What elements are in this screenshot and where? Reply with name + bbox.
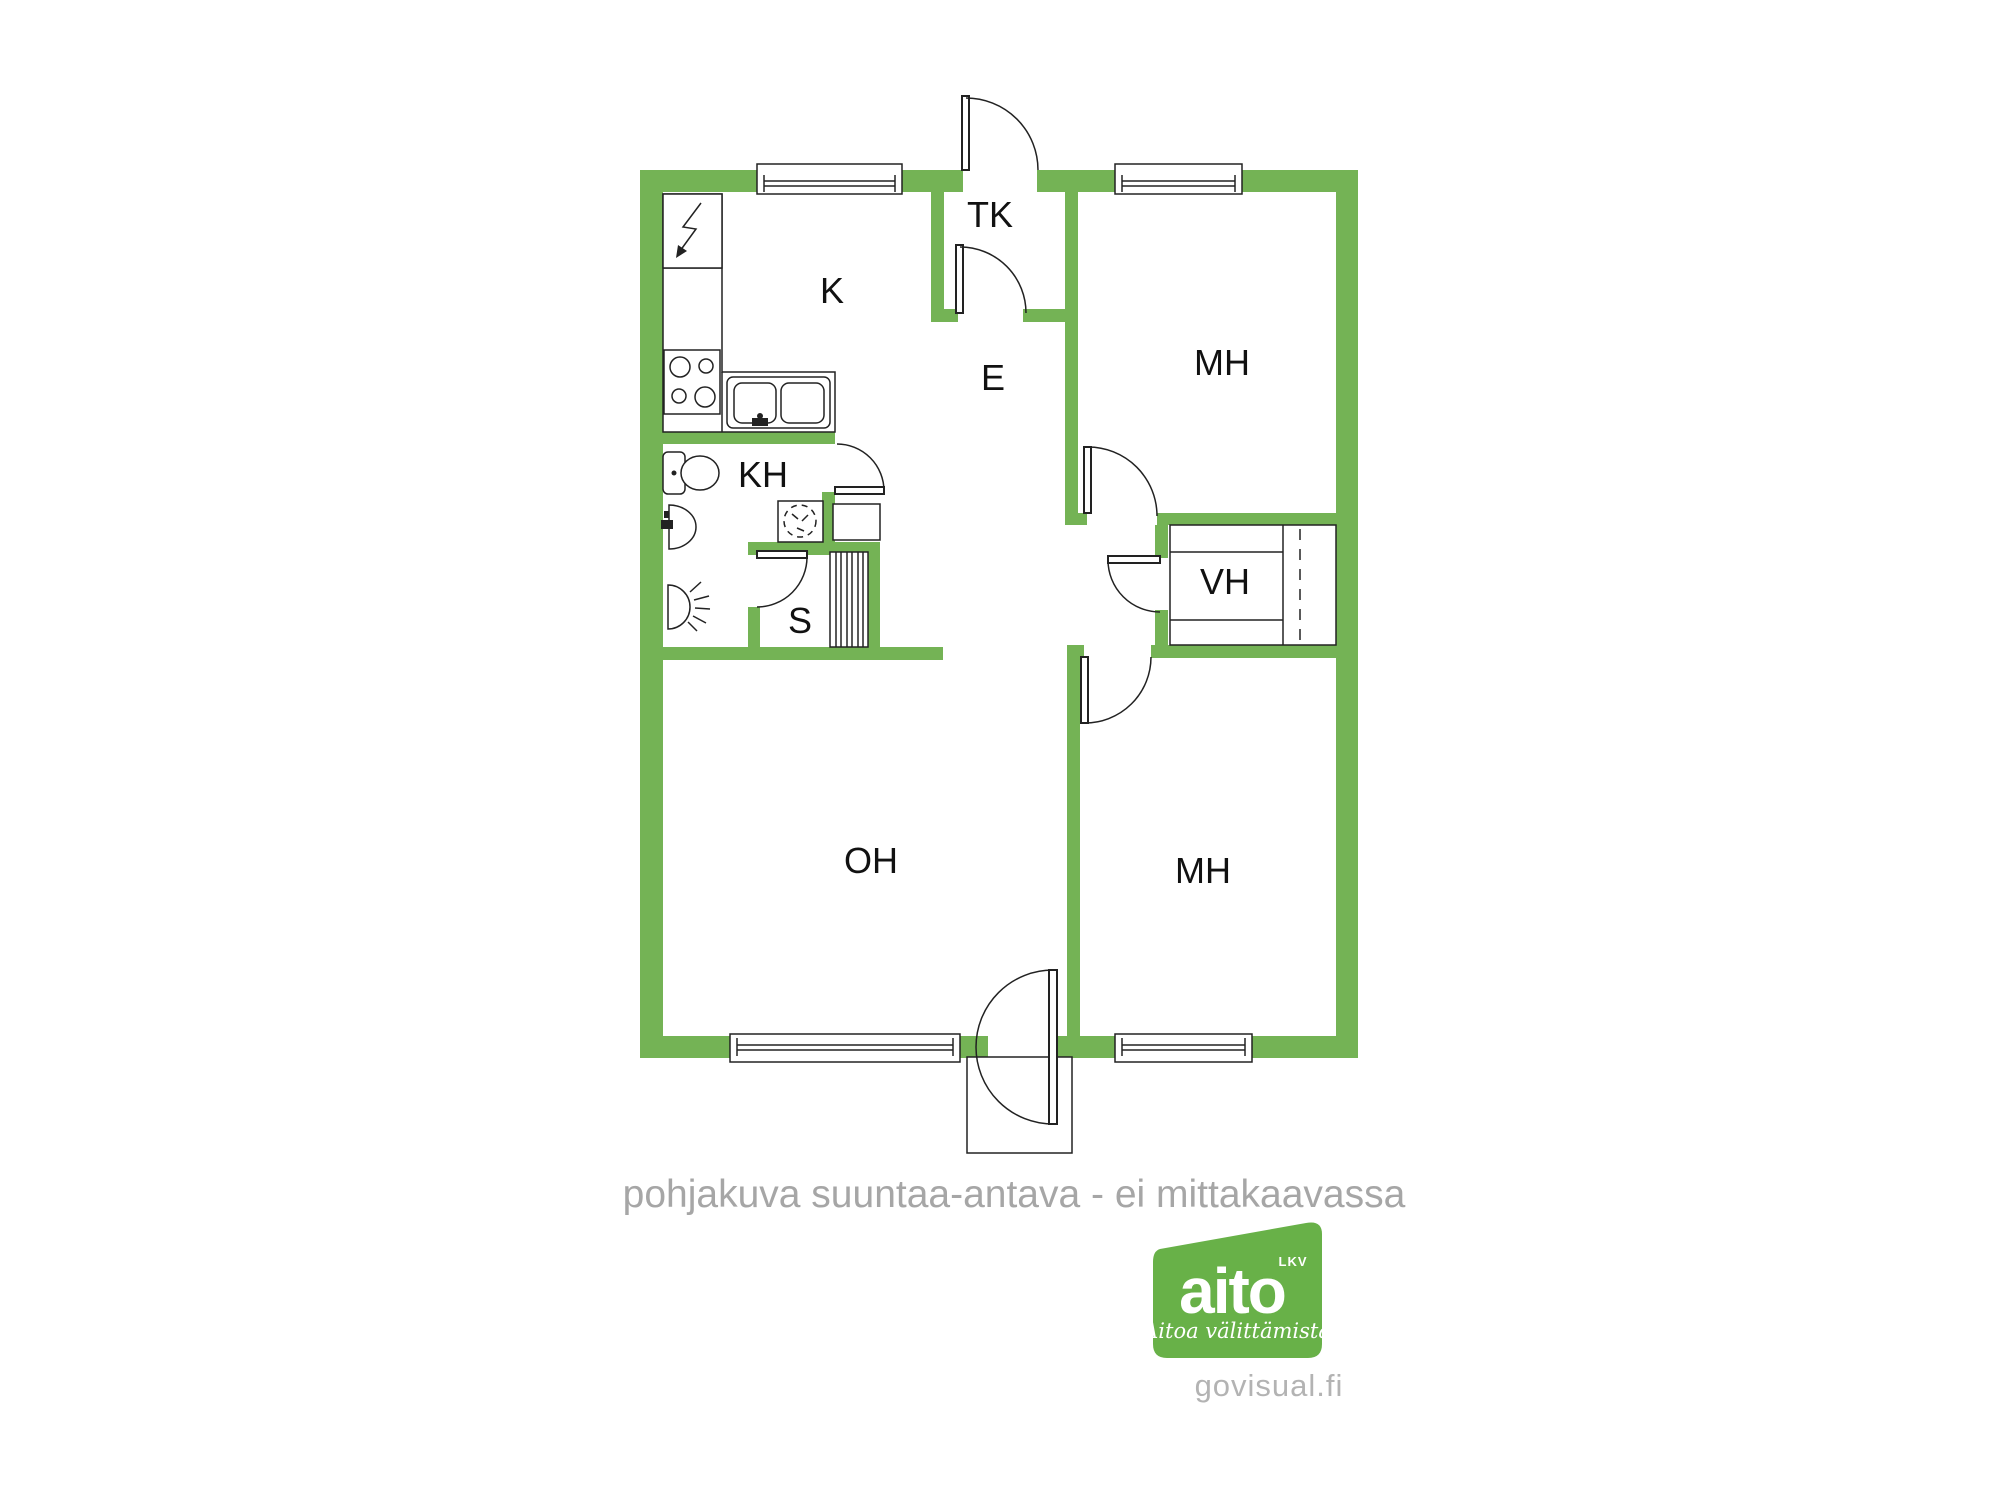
sauna-benches-icon: [830, 552, 868, 647]
footer-website: govisual.fi: [1195, 1368, 1344, 1403]
kitchen-sink-icon: [727, 377, 830, 428]
shower-icon: [668, 582, 710, 631]
wall-exterior-top-1: [640, 170, 757, 192]
floorplan-image: K TK E MH VH KH S OH MH pohjakuva suunta…: [0, 0, 2000, 1500]
wall-exterior-bottom-1: [640, 1036, 730, 1058]
window-mh-bottom: [1115, 1034, 1252, 1062]
wall-s-left-stub: [748, 607, 760, 648]
room-label-vh: VH: [1200, 561, 1250, 602]
electrical-panel-icon: [663, 194, 722, 268]
wall-exterior-bottom-4: [1252, 1036, 1358, 1058]
wall-tk-bottom-left: [931, 309, 958, 322]
logo-tagline: Aitoa välittämistä: [1141, 1319, 1331, 1343]
wall-oh-top: [662, 647, 943, 660]
window-oh: [730, 1034, 960, 1062]
aito-logo: aito LKV Aitoa välittämistä: [1141, 1222, 1331, 1358]
door-kh: [835, 444, 884, 494]
door-tk-hall: [956, 245, 1026, 313]
wall-exterior-bottom-2: [960, 1036, 988, 1058]
door-mh-top: [1084, 447, 1157, 516]
stove-icon: [664, 350, 720, 414]
logo-brand-text: aito: [1179, 1255, 1285, 1327]
room-label-e: E: [981, 357, 1005, 398]
room-label-s: S: [788, 600, 812, 641]
wall-mh-top-door-cap: [1065, 513, 1087, 525]
doors: [757, 96, 1160, 1153]
wall-s-right: [868, 547, 880, 650]
logo-lkv-text: LKV: [1279, 1254, 1308, 1269]
wardrobe-icon: [1170, 525, 1336, 645]
wall-e-right: [1065, 192, 1078, 525]
wall-oh-mh: [1067, 645, 1080, 1036]
door-sauna: [757, 551, 807, 607]
washing-machine-icon: [778, 501, 823, 542]
window-kitchen: [757, 164, 902, 194]
wall-exterior-top-4: [1242, 170, 1358, 192]
disclaimer-caption: pohjakuva suuntaa-antava - ei mittakaava…: [623, 1173, 1406, 1216]
wall-exterior-right: [1336, 170, 1358, 1058]
toilet-icon: [663, 452, 719, 494]
room-label-mh-top: MH: [1194, 342, 1250, 383]
wall-vh-left-lower: [1155, 610, 1168, 647]
wall-exterior-bottom-3: [1057, 1036, 1115, 1058]
wall-exterior-top-3: [1037, 170, 1115, 192]
wall-mh-vh: [1157, 513, 1336, 525]
door-vh: [1108, 556, 1160, 612]
room-label-tk: TK: [967, 194, 1013, 235]
wall-vh-left-upper: [1155, 525, 1168, 558]
room-label-kh: KH: [738, 454, 788, 495]
door-entry: [967, 970, 1072, 1153]
hall-closet-icon: [833, 504, 880, 540]
washbasin-icon: [661, 505, 696, 549]
wall-exterior-top-2: [902, 170, 963, 192]
wall-k-kh: [662, 431, 835, 444]
room-label-mh-bottom: MH: [1175, 850, 1231, 891]
wall-exterior-left: [640, 170, 663, 1058]
room-label-oh: OH: [844, 840, 898, 881]
door-mh-bottom: [1081, 657, 1151, 723]
wall-k-tk: [931, 192, 944, 322]
wall-vh-bottom: [1151, 645, 1336, 658]
room-label-k: K: [820, 270, 844, 311]
door-tk-exterior: [962, 96, 1038, 170]
window-mh-top: [1115, 164, 1242, 194]
